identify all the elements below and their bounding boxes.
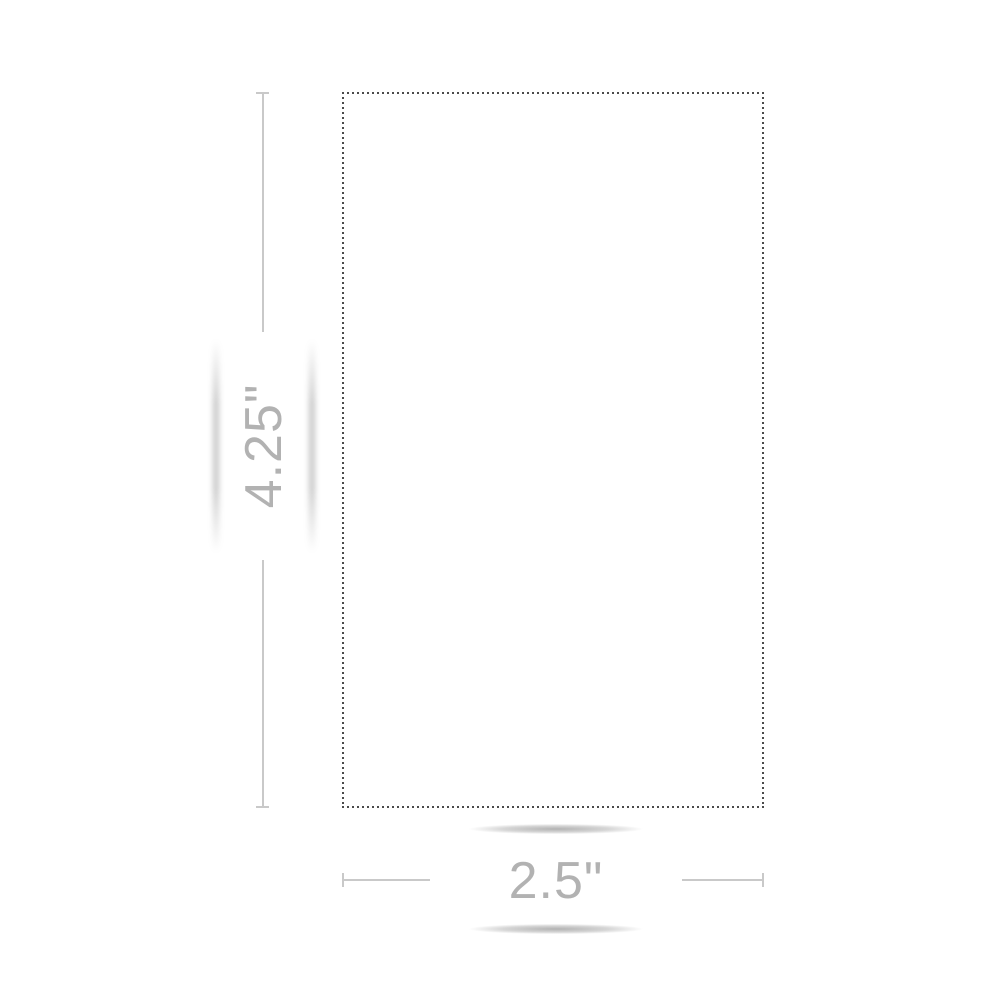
height-label-right-shadow <box>309 340 315 552</box>
height-label-pill: 4.25" <box>213 332 315 560</box>
cutline-bottom-edge <box>342 806 764 808</box>
width-dimension-label: 2.5" <box>509 855 604 907</box>
dimension-preview-canvas: 4.25" 2.5" <box>0 0 1000 1000</box>
width-dimension-cap-right <box>762 873 764 887</box>
height-dimension-label: 4.25" <box>238 384 290 509</box>
height-label-left-shadow <box>213 340 219 552</box>
width-label-drop-shadow <box>436 921 676 937</box>
cutline-top-edge <box>342 92 764 94</box>
height-dimension-cap-top <box>256 92 269 94</box>
width-dimension-cap-left <box>342 873 344 887</box>
width-label-pill: 2.5" <box>430 843 682 919</box>
height-dimension-cap-bottom <box>256 806 269 808</box>
rectangle-drop-shadow <box>436 821 676 837</box>
cutline-right-edge <box>762 92 764 808</box>
dashed-cutline-rectangle <box>342 92 764 808</box>
cutline-left-edge <box>342 92 344 808</box>
